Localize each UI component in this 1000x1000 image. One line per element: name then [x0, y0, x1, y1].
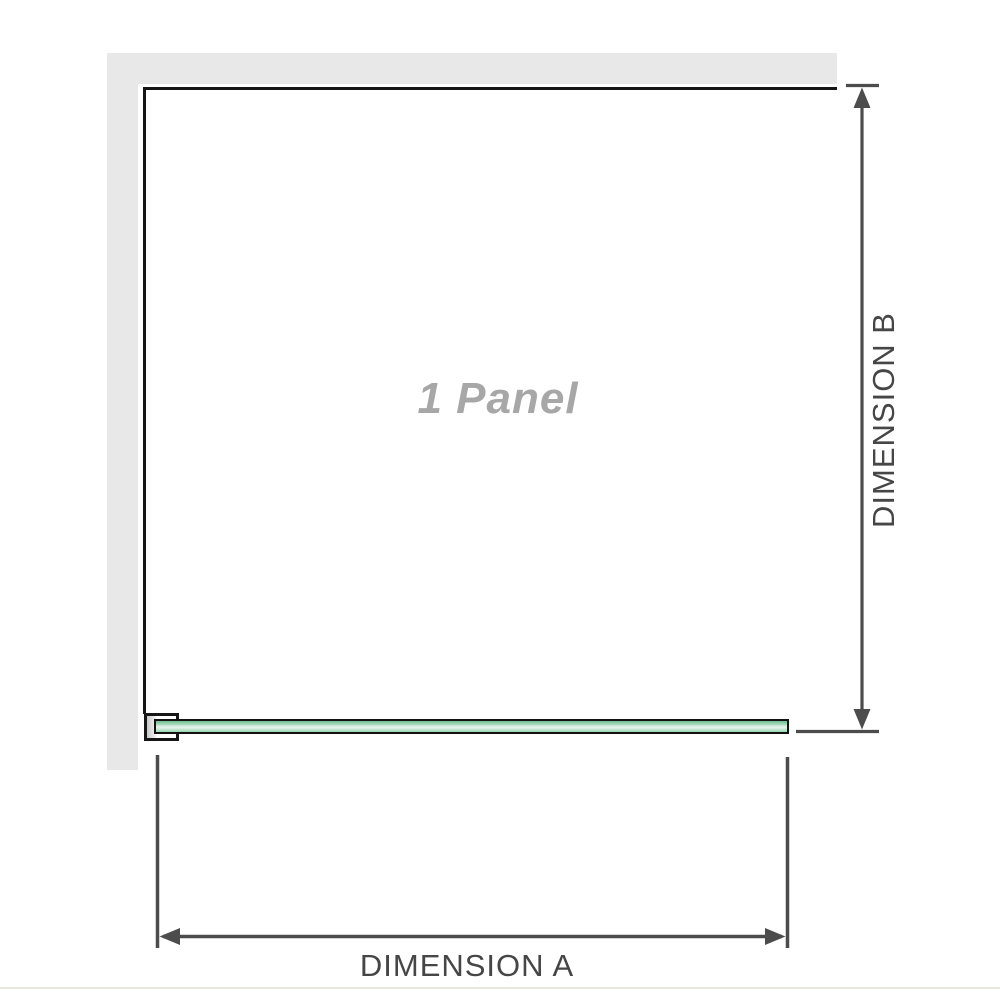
dim-a-arrow-left-icon: [160, 928, 181, 945]
panel-dimension-diagram: 1 Panel DIMENSION B DIMENSION A: [0, 0, 1000, 1000]
page-divider-line: [0, 987, 1000, 989]
panel-count-label: 1 Panel: [417, 374, 578, 424]
dim-b-arrow-up-icon: [854, 88, 871, 109]
dim-a-arrow-right-icon: [765, 928, 786, 945]
dimension-b-label: DIMENSION B: [866, 312, 902, 528]
diagram-linework: [0, 0, 1000, 1000]
dim-b-arrow-down-icon: [854, 709, 871, 730]
dimension-a-label: DIMENSION A: [360, 948, 574, 984]
glass-panel-bar: [154, 719, 789, 734]
